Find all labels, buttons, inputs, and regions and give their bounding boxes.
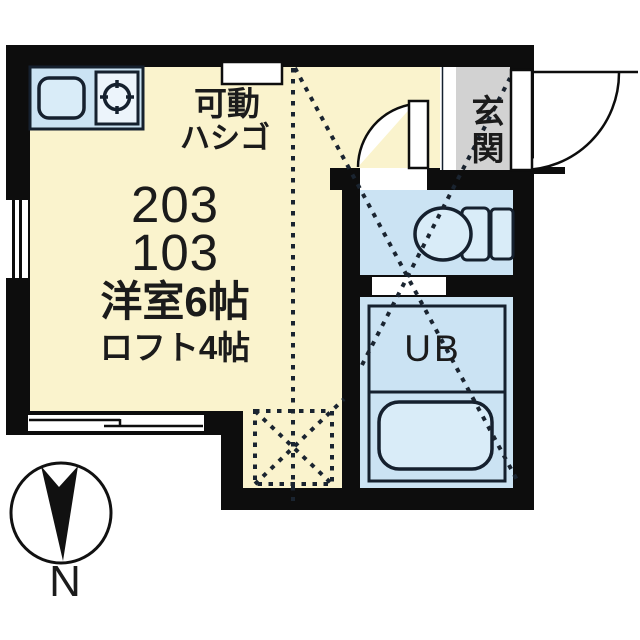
entrance-label: 玄関 [464,89,502,173]
north-compass-icon [11,463,111,563]
unit-number-103: 103 [95,227,255,278]
unit-number-203: 203 [95,179,255,230]
door-leaf [409,101,428,168]
kitchen-unit [30,67,143,129]
window-glass [6,200,28,278]
bathtub-icon [379,402,492,469]
floorplan-canvas: 可動 ハシゴ 203 103 洋室6帖 ロフト4帖 玄関 UB N [0,0,640,640]
loft-size-label: ロフト4帖 [80,331,270,364]
window-left-wall [6,200,28,278]
pipe-space-box [222,62,282,84]
ladder-label-line1: 可動 [170,87,284,120]
bath-door-opening [372,277,446,295]
door-leaf [511,70,532,170]
ladder-label-line2: ハシゴ [155,124,295,154]
compass-north-label: N [36,560,94,604]
unit-bath-label: UB [398,330,468,367]
entrance-door [511,70,638,170]
window-glass [28,412,204,434]
toilet-door-opening [360,168,427,190]
kitchen-sink-icon [39,78,84,118]
toilet-shelf [491,209,513,259]
toilet-bowl [415,208,471,260]
main-room-size-label: 洋室6帖 [68,281,282,323]
door-swing-arc [522,73,619,170]
window-bottom-wall [28,412,204,434]
